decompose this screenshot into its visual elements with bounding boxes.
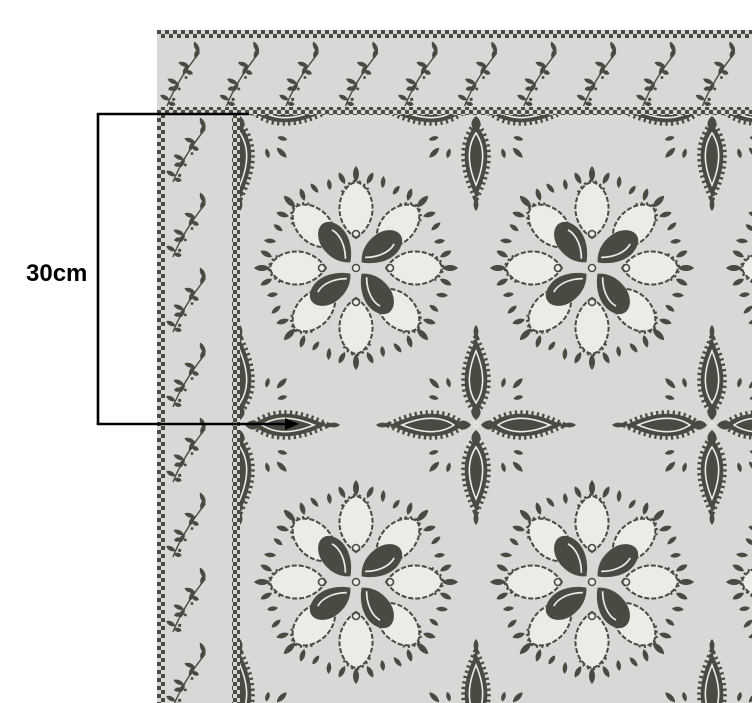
- top-border-band: [157, 30, 752, 115]
- fabric-pattern: [157, 30, 752, 703]
- checkerboard-trim: [232, 115, 240, 703]
- checkerboard-trim: [157, 115, 165, 703]
- checkerboard-trim: [157, 107, 752, 115]
- left-border-band: [157, 115, 240, 703]
- checkerboard-trim: [157, 30, 752, 38]
- fabric-scale-mockup: 30cm: [0, 0, 752, 703]
- fabric-swatch: [157, 30, 752, 703]
- measurement-label: 30cm: [26, 261, 87, 287]
